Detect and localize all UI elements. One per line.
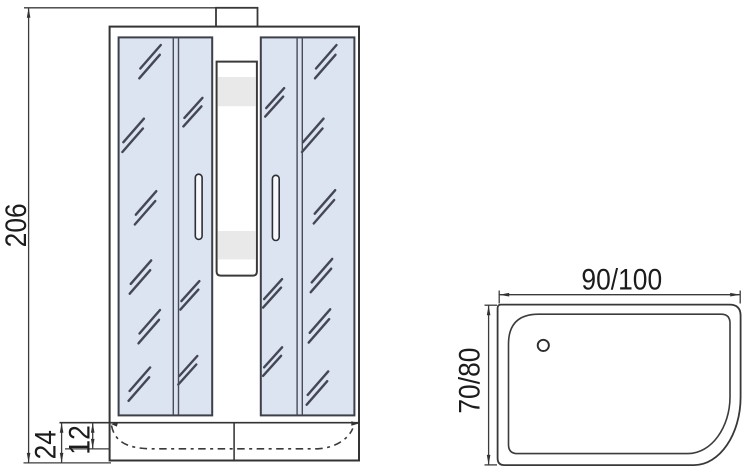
svg-text:90/100: 90/100 bbox=[581, 262, 662, 296]
svg-text:70/80: 70/80 bbox=[452, 348, 486, 414]
svg-text:24: 24 bbox=[28, 430, 62, 459]
svg-text:206: 206 bbox=[0, 203, 32, 247]
svg-text:12: 12 bbox=[62, 425, 96, 454]
